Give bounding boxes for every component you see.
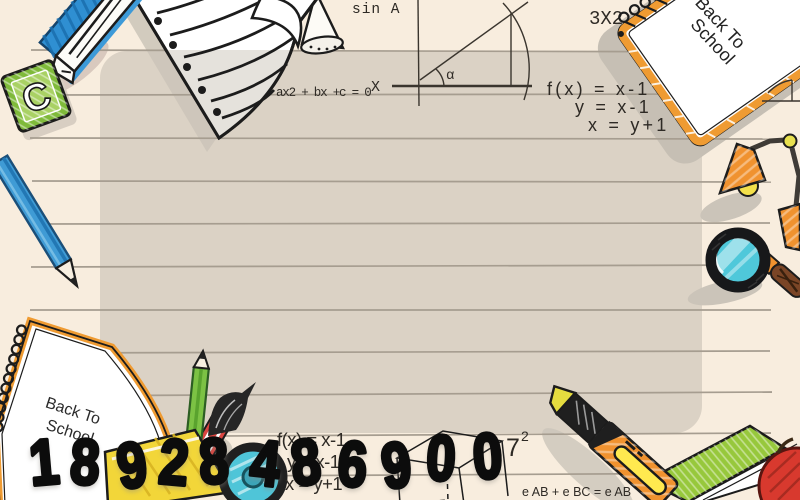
svg-text:8: 8 xyxy=(69,426,102,499)
svg-text:7: 7 xyxy=(506,434,520,462)
svg-text:X: X xyxy=(371,79,380,96)
svg-text:1: 1 xyxy=(27,426,62,499)
svg-text:3X2: 3X2 xyxy=(589,8,623,30)
svg-text:sin A: sin A xyxy=(352,2,401,18)
svg-text:x = y+1: x = y+1 xyxy=(588,115,669,135)
svg-text:6: 6 xyxy=(335,428,369,500)
svg-text:0: 0 xyxy=(425,422,458,495)
svg-text:0: 0 xyxy=(470,420,504,493)
svg-text:f(x) = x-1: f(x) = x-1 xyxy=(547,79,651,99)
svg-text:y = x-1: y = x-1 xyxy=(575,97,652,117)
svg-text:e AB + e BC = e AB: e AB + e BC = e AB xyxy=(522,485,631,499)
svg-text:ax2 + bx +c = 0: ax2 + bx +c = 0 xyxy=(276,86,371,100)
svg-text:2: 2 xyxy=(156,426,191,499)
svg-text:2: 2 xyxy=(521,428,529,444)
svg-text:α: α xyxy=(446,68,454,84)
svg-text:8: 8 xyxy=(197,425,230,498)
